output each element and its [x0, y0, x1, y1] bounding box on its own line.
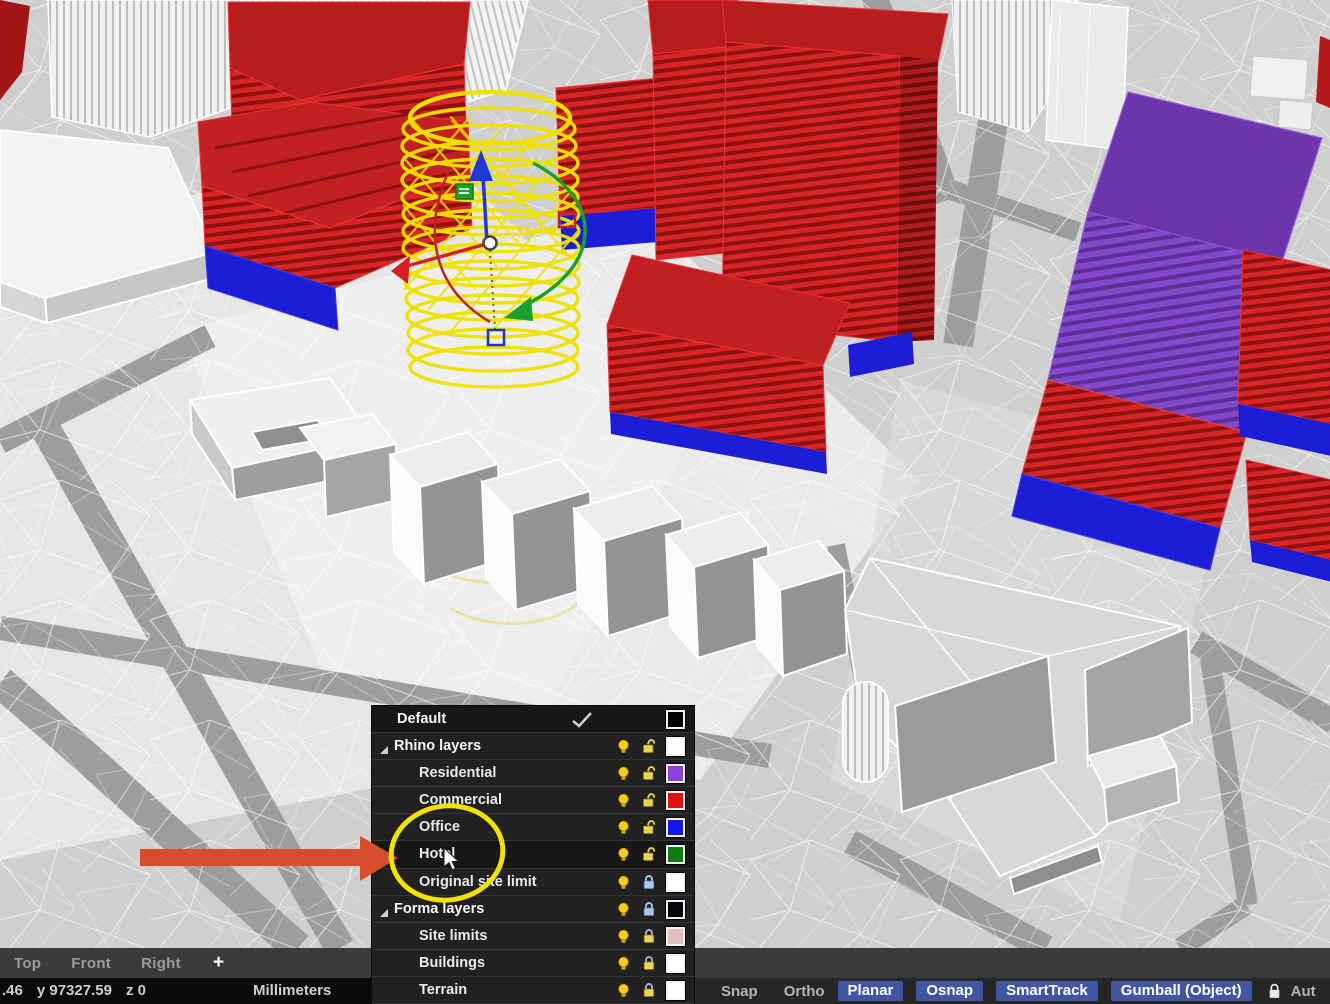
- layer-visibility-bulb-icon[interactable]: [616, 902, 631, 923]
- layer-visibility-bulb-icon[interactable]: [616, 956, 631, 977]
- layer-visibility-bulb-icon[interactable]: [616, 766, 631, 787]
- layer-lock-icon[interactable]: [641, 792, 658, 814]
- viewport-tab-top[interactable]: Top: [14, 955, 41, 972]
- layer-label: Commercial: [419, 787, 502, 813]
- layer-row-original-site-limit[interactable]: Original site limit: [372, 869, 694, 896]
- layer-color-swatch[interactable]: [666, 900, 685, 919]
- commercial-towers-right[interactable]: [1238, 250, 1330, 582]
- coord-x: .46: [2, 982, 23, 999]
- pane-ortho[interactable]: Ortho: [784, 983, 825, 1000]
- layer-lock-icon[interactable]: [641, 928, 658, 950]
- small-white-box-2: [1278, 100, 1313, 130]
- pane-snap[interactable]: Snap: [721, 983, 758, 1000]
- layer-lock-icon[interactable]: [641, 738, 658, 760]
- lock-icon[interactable]: [1268, 983, 1281, 999]
- layer-label: Buildings: [419, 950, 485, 976]
- layer-color-swatch[interactable]: [666, 845, 685, 864]
- coord-z: z 0: [126, 982, 146, 999]
- add-viewport-tab-button[interactable]: +: [213, 952, 224, 974]
- layer-label: Terrain: [419, 977, 467, 1003]
- layer-lock-icon[interactable]: [641, 955, 658, 977]
- layer-lock-icon[interactable]: [641, 901, 658, 923]
- layer-visibility-bulb-icon[interactable]: [616, 847, 631, 868]
- layer-label: Forma layers: [394, 896, 484, 922]
- layer-color-swatch[interactable]: [666, 710, 685, 729]
- layer-visibility-bulb-icon[interactable]: [616, 739, 631, 760]
- viewport-tab-right[interactable]: Right: [141, 955, 181, 972]
- clipped-pane-label[interactable]: Aut: [1291, 983, 1316, 1000]
- viewport-tab-front[interactable]: Front: [71, 955, 111, 972]
- layer-visibility-bulb-icon[interactable]: [616, 793, 631, 814]
- layer-color-swatch[interactable]: [666, 764, 685, 783]
- layer-row-default[interactable]: Default: [372, 706, 694, 733]
- layer-row-residential[interactable]: Residential: [372, 760, 694, 787]
- layer-row-terrain[interactable]: Terrain: [372, 977, 694, 1004]
- layer-lock-icon[interactable]: [641, 982, 658, 1004]
- layer-row-site-limits[interactable]: Site limits: [372, 923, 694, 950]
- layer-visibility-bulb-icon[interactable]: [616, 820, 631, 841]
- layer-visibility-bulb-icon[interactable]: [616, 875, 631, 896]
- pane-osnap[interactable]: Osnap: [916, 981, 983, 1001]
- layer-label: Residential: [419, 760, 496, 786]
- small-white-box: [1250, 56, 1308, 100]
- gumball-green-handle[interactable]: [456, 184, 473, 199]
- current-layer-check-icon: [570, 711, 594, 733]
- pane-planar[interactable]: Planar: [838, 981, 904, 1001]
- layer-color-swatch[interactable]: [666, 927, 685, 946]
- layer-color-swatch[interactable]: [666, 954, 685, 973]
- layer-visibility-bulb-icon[interactable]: [616, 983, 631, 1004]
- cylindrical-tower: [843, 682, 888, 782]
- rhino-window: TopFrontRight + .46y 97327.59z 0 Millime…: [0, 0, 1330, 1004]
- pane-gumball-object-[interactable]: Gumball (Object): [1111, 981, 1252, 1001]
- layer-row-buildings[interactable]: Buildings: [372, 950, 694, 977]
- layer-label: Rhino layers: [394, 733, 481, 759]
- coord-y: y 97327.59: [37, 982, 112, 999]
- layer-label: Site limits: [419, 923, 488, 949]
- layer-color-swatch[interactable]: [666, 981, 685, 1000]
- layer-color-swatch[interactable]: [666, 791, 685, 810]
- layer-color-swatch[interactable]: [666, 737, 685, 756]
- layer-row-office[interactable]: Office: [372, 814, 694, 841]
- layer-lock-icon[interactable]: [641, 819, 658, 841]
- layer-label: Default: [397, 706, 446, 732]
- units-label[interactable]: Millimeters: [253, 978, 331, 1004]
- pane-smarttrack[interactable]: SmartTrack: [996, 981, 1098, 1001]
- layer-lock-icon[interactable]: [641, 765, 658, 787]
- layers-panel: DefaultRhino layersResidentialCommercial…: [372, 706, 694, 1004]
- layer-row-commercial[interactable]: Commercial: [372, 787, 694, 814]
- layer-color-swatch[interactable]: [666, 873, 685, 892]
- layer-label: Hotel: [419, 841, 455, 867]
- layer-lock-icon[interactable]: [641, 874, 658, 896]
- layer-color-swatch[interactable]: [666, 818, 685, 837]
- status-bar-right: SnapOrthoPlanarOsnapSmartTrackGumball (O…: [695, 978, 1330, 1004]
- cursor-coordinates: .46y 97327.59z 0: [2, 978, 160, 1004]
- gumball-origin[interactable]: [484, 237, 497, 250]
- layer-row-rhino-layers[interactable]: Rhino layers: [372, 733, 694, 760]
- expander-icon[interactable]: [379, 742, 389, 760]
- layer-label: Office: [419, 814, 460, 840]
- layer-label: Original site limit: [419, 869, 537, 895]
- layer-lock-icon[interactable]: [641, 846, 658, 868]
- layer-visibility-bulb-icon[interactable]: [616, 929, 631, 950]
- expander-icon[interactable]: [379, 905, 389, 923]
- layer-row-hotel[interactable]: Hotel: [372, 841, 694, 868]
- layer-row-forma-layers[interactable]: Forma layers: [372, 896, 694, 923]
